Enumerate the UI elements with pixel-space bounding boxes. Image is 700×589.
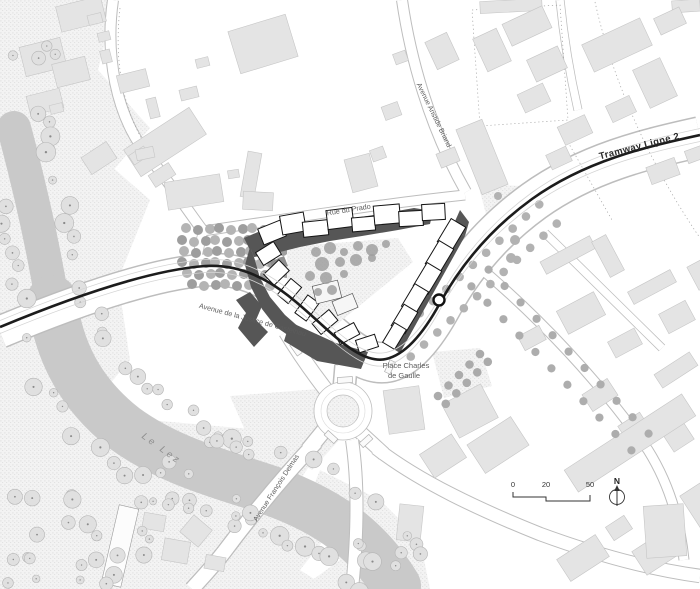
tree: [563, 381, 571, 389]
tree: [211, 280, 221, 290]
project-building: [302, 220, 328, 238]
tree: [193, 225, 203, 235]
tree: [441, 399, 450, 408]
tree-center: [152, 501, 153, 502]
tree-center: [45, 151, 47, 153]
tree: [55, 214, 74, 233]
tree: [433, 328, 442, 337]
tree: [210, 434, 224, 448]
tree: [382, 240, 390, 248]
tree: [162, 499, 174, 511]
tree: [506, 253, 516, 263]
tree-center: [304, 545, 306, 547]
tree-center: [69, 204, 71, 206]
tree-center: [193, 410, 194, 411]
tree: [135, 496, 148, 509]
tree-center: [375, 501, 377, 503]
tree: [564, 348, 572, 356]
tree-center: [5, 206, 7, 208]
tree: [36, 142, 56, 162]
tree: [462, 378, 471, 387]
tree-center: [78, 287, 80, 289]
tree-center: [0, 223, 2, 225]
tree: [24, 553, 35, 564]
tree: [473, 368, 482, 377]
tree: [142, 383, 153, 394]
tree-center: [231, 438, 233, 440]
tree-center: [12, 55, 13, 56]
tree-center: [38, 57, 40, 59]
tree-center: [354, 493, 355, 494]
tree: [420, 340, 429, 349]
tree: [305, 271, 315, 281]
tree: [627, 446, 635, 454]
tree-center: [87, 523, 89, 525]
tree: [522, 212, 531, 221]
tree: [644, 430, 652, 438]
tree: [510, 235, 520, 245]
tree-center: [235, 446, 236, 447]
tree-center: [313, 458, 315, 460]
tree: [595, 413, 603, 421]
tree-center: [328, 555, 330, 557]
tree-center: [11, 283, 12, 284]
tree-center: [188, 473, 189, 474]
building: [243, 191, 274, 211]
tree: [444, 381, 453, 390]
tree: [135, 466, 152, 483]
tree: [162, 399, 173, 410]
tree: [486, 280, 495, 289]
tram-stop-marker: [434, 295, 445, 306]
tree-center: [168, 504, 169, 505]
tree: [232, 281, 242, 291]
tree: [194, 270, 204, 280]
tree-center: [333, 468, 334, 469]
tree: [44, 116, 56, 128]
tree-center: [249, 512, 251, 514]
tree: [30, 106, 45, 121]
tree: [156, 468, 166, 478]
tree: [612, 397, 620, 405]
tree: [320, 547, 338, 565]
tree: [153, 384, 164, 395]
tree-center: [142, 530, 143, 531]
tree-center: [234, 525, 236, 527]
tree: [91, 438, 109, 456]
tree: [335, 257, 345, 267]
tree: [580, 364, 588, 372]
tree: [515, 331, 523, 339]
tree-center: [81, 564, 82, 565]
tree: [460, 304, 469, 313]
tree-center: [72, 254, 73, 255]
tree: [62, 428, 79, 445]
tree: [482, 248, 491, 257]
tree: [499, 268, 508, 277]
tree: [49, 388, 58, 397]
tree: [95, 307, 109, 321]
tree: [353, 241, 363, 251]
tree-center: [70, 435, 72, 437]
tree-center: [35, 578, 36, 579]
tree-center: [206, 510, 207, 511]
scale-tick-20: 20: [542, 480, 550, 489]
tree: [320, 272, 332, 284]
tree: [212, 246, 222, 256]
tree: [395, 547, 407, 559]
tree: [353, 539, 363, 549]
tree: [228, 519, 241, 532]
tree-center: [189, 499, 191, 501]
tree: [434, 392, 443, 401]
tree-center: [262, 532, 263, 533]
tree-center: [216, 440, 218, 442]
tree: [32, 575, 40, 583]
road-surface: [352, 440, 357, 589]
tree: [494, 192, 502, 200]
tree-center: [416, 544, 418, 546]
tree: [535, 200, 544, 209]
tree: [206, 269, 216, 279]
tree-center: [62, 406, 63, 407]
tree-center: [137, 376, 139, 378]
tree-center: [188, 508, 189, 509]
tree: [628, 413, 636, 421]
tree: [539, 231, 548, 240]
tree-center: [113, 574, 115, 576]
tree: [179, 246, 189, 256]
tree: [119, 362, 132, 375]
tree: [452, 389, 461, 398]
tree: [110, 548, 125, 563]
tree-center: [96, 535, 97, 536]
tree: [0, 233, 10, 244]
label-place-charles-line1: Place Charles: [383, 361, 430, 370]
tree-center: [26, 337, 27, 338]
tree-center: [280, 452, 282, 454]
tree-center: [147, 388, 148, 389]
tree: [100, 577, 114, 589]
tree: [243, 449, 254, 460]
tree-center: [140, 502, 142, 504]
tree-center: [101, 313, 103, 315]
tree: [177, 235, 187, 245]
project-building: [351, 216, 375, 232]
tree: [484, 266, 492, 274]
tree: [25, 378, 43, 396]
tree: [476, 350, 485, 359]
roundabout: [314, 382, 372, 440]
building: [383, 386, 425, 435]
tree: [413, 547, 427, 561]
tree: [315, 257, 329, 271]
tree: [455, 371, 464, 380]
tree-center: [26, 297, 28, 299]
tree: [116, 467, 132, 483]
tree-center: [117, 554, 119, 556]
tree: [238, 224, 248, 234]
tree: [30, 527, 45, 542]
tree: [95, 330, 112, 347]
tree: [137, 526, 147, 536]
scale-tick-50: 50: [586, 480, 594, 489]
site-plan: Tramway Ligne 2 Rue du Prado Avenue Aris…: [0, 0, 700, 589]
tree: [552, 219, 561, 228]
tree-center: [149, 538, 150, 539]
tree-center: [46, 45, 47, 46]
tree: [236, 247, 246, 257]
tree: [5, 246, 19, 260]
tree: [340, 248, 348, 256]
tree: [205, 224, 215, 234]
tree-center: [7, 582, 8, 583]
tree: [76, 559, 87, 570]
tree: [532, 315, 540, 323]
tree: [222, 237, 232, 247]
tree: [67, 230, 81, 244]
tree: [611, 430, 619, 438]
tree-center: [160, 472, 161, 473]
tree: [149, 498, 156, 505]
tree: [243, 436, 253, 446]
tree-center: [95, 559, 97, 561]
tree-center: [125, 368, 127, 370]
tree: [465, 360, 474, 369]
tree-center: [55, 54, 56, 55]
tree: [79, 516, 96, 533]
tree: [0, 199, 13, 214]
tree: [232, 512, 241, 521]
tree: [220, 279, 230, 289]
tree: [531, 348, 539, 356]
tree-center: [18, 265, 19, 266]
tree-center: [63, 222, 65, 224]
tree: [579, 397, 587, 405]
tree: [508, 224, 517, 233]
tree-center: [157, 389, 158, 390]
tree: [199, 281, 209, 291]
tree: [130, 369, 146, 385]
label-place-charles-line2: de Gaulle: [388, 371, 420, 380]
roundabout-island: [327, 395, 359, 427]
tree: [196, 421, 211, 436]
tree: [548, 331, 556, 339]
tree: [181, 223, 191, 233]
tree: [24, 490, 40, 506]
tree: [232, 495, 240, 503]
tree: [183, 503, 194, 514]
tree-center: [14, 496, 16, 498]
tree-center: [79, 579, 80, 580]
tree: [282, 540, 293, 551]
tree: [403, 531, 412, 540]
tree-center: [71, 498, 73, 500]
tree: [327, 285, 337, 295]
tree: [274, 446, 287, 459]
tree-center: [13, 559, 14, 560]
building: [227, 169, 239, 179]
tree: [214, 223, 224, 233]
tree: [17, 289, 36, 308]
tree-center: [420, 553, 422, 555]
tree-center: [166, 404, 167, 405]
tree: [107, 456, 120, 469]
tree: [64, 491, 81, 508]
tree: [340, 270, 348, 278]
tree: [596, 380, 604, 388]
tree: [41, 41, 52, 52]
tree-center: [248, 454, 249, 455]
tree-center: [371, 561, 373, 563]
tree: [3, 578, 14, 589]
tree: [61, 197, 79, 215]
tree: [7, 553, 19, 565]
tree: [368, 254, 376, 262]
tree-center: [49, 135, 51, 137]
tree: [224, 248, 234, 258]
tree-center: [52, 179, 53, 180]
tree-center: [236, 498, 237, 499]
tree: [191, 248, 201, 258]
tree: [6, 278, 18, 290]
tree-center: [31, 497, 33, 499]
tree: [391, 561, 401, 571]
tree: [483, 299, 491, 307]
scale-tick-0: 0: [511, 480, 515, 489]
tree: [12, 260, 24, 272]
tree-center: [407, 535, 408, 536]
building: [161, 538, 190, 564]
tree-center: [395, 565, 396, 566]
project-building: [399, 210, 424, 226]
tree: [259, 529, 268, 538]
tree: [57, 401, 68, 412]
tree-center: [400, 552, 401, 553]
tree-center: [113, 462, 115, 464]
tree: [50, 49, 60, 59]
tree: [446, 316, 455, 325]
tree: [136, 547, 152, 563]
tree: [314, 288, 322, 296]
tree: [305, 451, 322, 468]
tree: [201, 236, 211, 246]
tree-center: [171, 498, 173, 500]
tree: [368, 494, 384, 510]
tree-center: [12, 252, 14, 254]
tree-center: [49, 121, 50, 122]
tree: [76, 576, 84, 584]
tree-center: [4, 238, 5, 239]
tree: [22, 333, 31, 342]
tree: [499, 315, 507, 323]
tree: [32, 51, 46, 65]
tree: [467, 282, 475, 290]
tree: [364, 553, 382, 571]
tree: [328, 463, 340, 475]
tree: [188, 405, 199, 416]
building: [643, 504, 687, 559]
tree-center: [235, 515, 236, 516]
tree-center: [358, 543, 359, 544]
tree: [92, 530, 102, 540]
tree-center: [53, 392, 54, 393]
building: [204, 554, 226, 571]
tree: [547, 364, 555, 372]
tree: [189, 237, 199, 247]
tree: [311, 247, 321, 257]
crosswalk: [337, 376, 352, 383]
site-plan-canvas: Tramway Ligne 2 Rue du Prado Avenue Aris…: [0, 0, 700, 589]
tree: [203, 247, 213, 257]
tree-center: [99, 446, 101, 448]
tree: [495, 236, 504, 245]
tree: [49, 176, 57, 184]
tree-center: [279, 535, 281, 537]
tree: [62, 516, 76, 530]
tree-center: [124, 475, 126, 477]
tree: [187, 279, 197, 289]
tree: [247, 223, 257, 233]
tree: [473, 292, 482, 301]
tree: [145, 535, 153, 543]
tree: [8, 51, 18, 61]
tree: [349, 487, 361, 499]
tree-center: [287, 545, 288, 546]
tree-center: [142, 474, 144, 476]
tree: [516, 298, 524, 306]
north-arrow-label: N: [614, 476, 620, 486]
tree-center: [37, 113, 39, 115]
tree-center: [106, 583, 108, 585]
tree-center: [73, 236, 75, 238]
tree: [234, 236, 244, 246]
tree: [230, 441, 242, 453]
tree-center: [29, 558, 30, 559]
tree-center: [203, 427, 205, 429]
tree-center: [247, 441, 248, 442]
tree: [210, 235, 220, 245]
tree: [526, 243, 535, 252]
tree-center: [345, 581, 347, 583]
tree: [7, 489, 22, 504]
tree: [500, 282, 508, 290]
project-building: [422, 203, 446, 220]
tree-center: [36, 534, 38, 536]
tree-center: [32, 386, 34, 388]
tree: [226, 225, 236, 235]
tree: [324, 242, 336, 254]
tree: [350, 254, 362, 266]
tree: [483, 357, 492, 366]
tree: [88, 552, 104, 568]
tree: [67, 250, 77, 260]
tree-center: [143, 554, 145, 556]
tree-center: [102, 337, 104, 339]
tree-center: [68, 522, 70, 524]
tree-center: [318, 553, 320, 555]
tree: [200, 505, 212, 517]
tree: [184, 469, 193, 478]
project-building: [373, 204, 401, 225]
